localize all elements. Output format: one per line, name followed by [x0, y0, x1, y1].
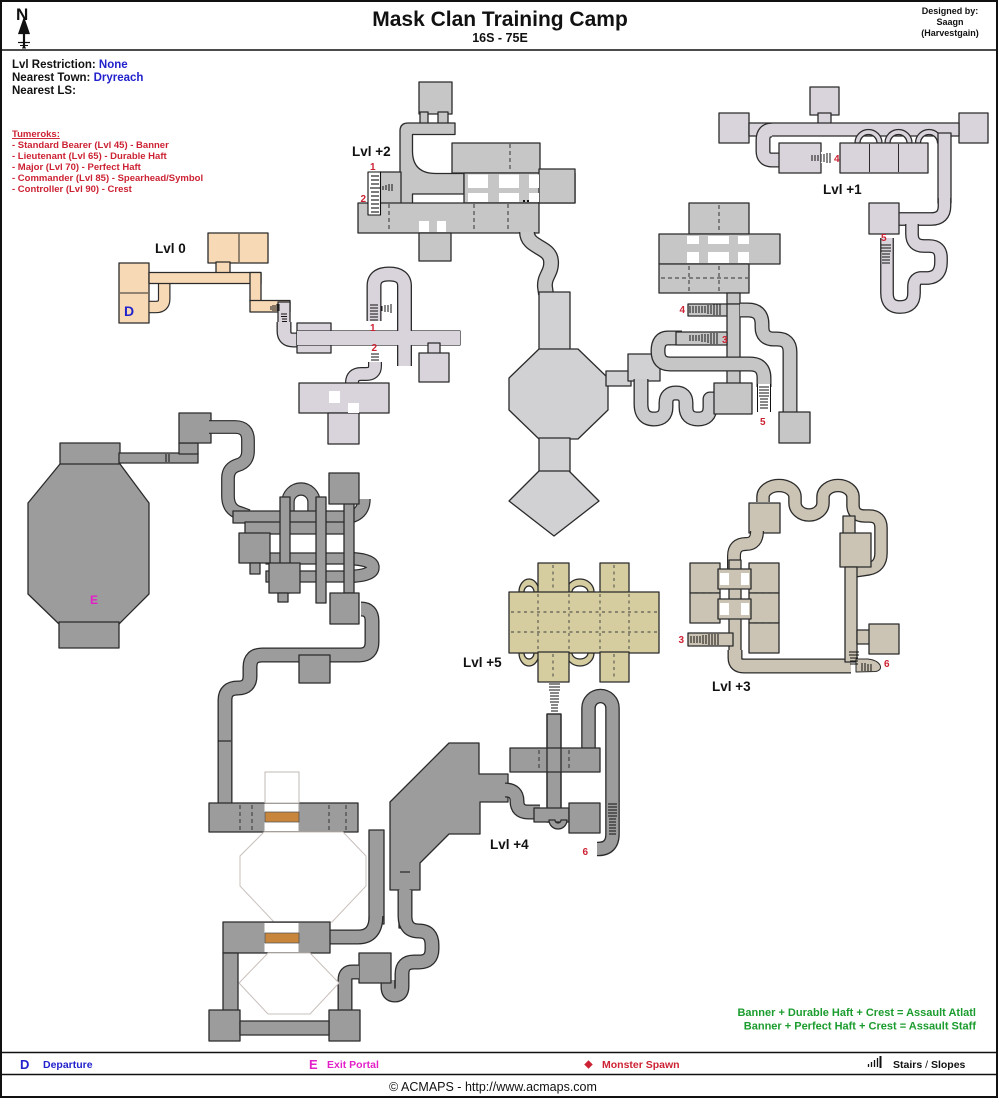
svg-text:16S - 75E: 16S - 75E — [472, 31, 528, 45]
svg-text:Lvl +5: Lvl +5 — [463, 655, 502, 670]
svg-text:1: 1 — [370, 323, 376, 334]
svg-text:Lvl +4: Lvl +4 — [490, 837, 529, 852]
svg-text:Departure: Departure — [43, 1059, 93, 1071]
svg-text:Monster Spawn: Monster Spawn — [602, 1059, 680, 1071]
svg-text:Exit Portal: Exit Portal — [327, 1059, 379, 1071]
svg-text:- Standard Bearer (Lvl 45) - B: - Standard Bearer (Lvl 45) - Banner — [12, 140, 169, 151]
svg-text:4: 4 — [834, 154, 840, 165]
svg-text:1: 1 — [370, 162, 376, 173]
svg-text:© ACMAPS - http://www.acmaps.c: © ACMAPS - http://www.acmaps.com — [389, 1080, 597, 1094]
svg-text:E: E — [309, 1057, 318, 1072]
svg-text:Saagn: Saagn — [936, 17, 963, 27]
svg-text:- Major (Lvl 70) - Perfect Haf: - Major (Lvl 70) - Perfect Haft — [12, 162, 142, 173]
svg-text:N: N — [16, 5, 28, 24]
svg-text:D: D — [124, 303, 134, 319]
svg-text:- Lieutenant (Lvl 65) - Durabl: - Lieutenant (Lvl 65) - Durable Haft — [12, 151, 167, 162]
svg-text:Lvl Restriction: None: Lvl Restriction: None — [12, 59, 128, 71]
svg-text:6: 6 — [582, 847, 588, 858]
svg-text:- Commander (Lvl 85) - Spearhe: - Commander (Lvl 85) - Spearhead/Symbol — [12, 173, 203, 184]
svg-text:Nearest LS:: Nearest LS: — [12, 85, 76, 97]
svg-text:Lvl 0: Lvl 0 — [155, 241, 186, 256]
svg-text:Lvl +1: Lvl +1 — [823, 182, 862, 197]
svg-text:- Controller (Lvl 90) - Crest: - Controller (Lvl 90) - Crest — [12, 184, 133, 195]
svg-text:2: 2 — [360, 194, 366, 205]
svg-text:Stairs / Slopes: Stairs / Slopes — [893, 1059, 966, 1071]
svg-text:5: 5 — [760, 417, 766, 428]
svg-text:E: E — [90, 593, 98, 607]
svg-text:Nearest Town: Dryreach: Nearest Town: Dryreach — [12, 72, 143, 84]
svg-text:Banner + Perfect Haft + Crest: Banner + Perfect Haft + Crest = Assault … — [744, 1021, 977, 1033]
svg-text:3: 3 — [722, 335, 728, 346]
svg-text:Designed by:: Designed by: — [922, 6, 979, 16]
svg-text:Banner + Durable Haft + Crest: Banner + Durable Haft + Crest = Assault … — [737, 1007, 976, 1019]
svg-text:Lvl +3: Lvl +3 — [712, 679, 751, 694]
svg-text:(Harvestgain): (Harvestgain) — [921, 28, 979, 38]
svg-text:5: 5 — [881, 233, 887, 244]
svg-text:4: 4 — [679, 305, 685, 316]
svg-text:3: 3 — [678, 635, 684, 646]
svg-text:Lvl +2: Lvl +2 — [352, 144, 391, 159]
svg-text:6: 6 — [884, 659, 890, 670]
svg-text:D: D — [20, 1057, 29, 1072]
svg-text:Tumeroks:: Tumeroks: — [12, 129, 60, 140]
svg-text:2: 2 — [371, 343, 377, 354]
svg-text:Mask Clan Training Camp: Mask Clan Training Camp — [372, 8, 628, 31]
